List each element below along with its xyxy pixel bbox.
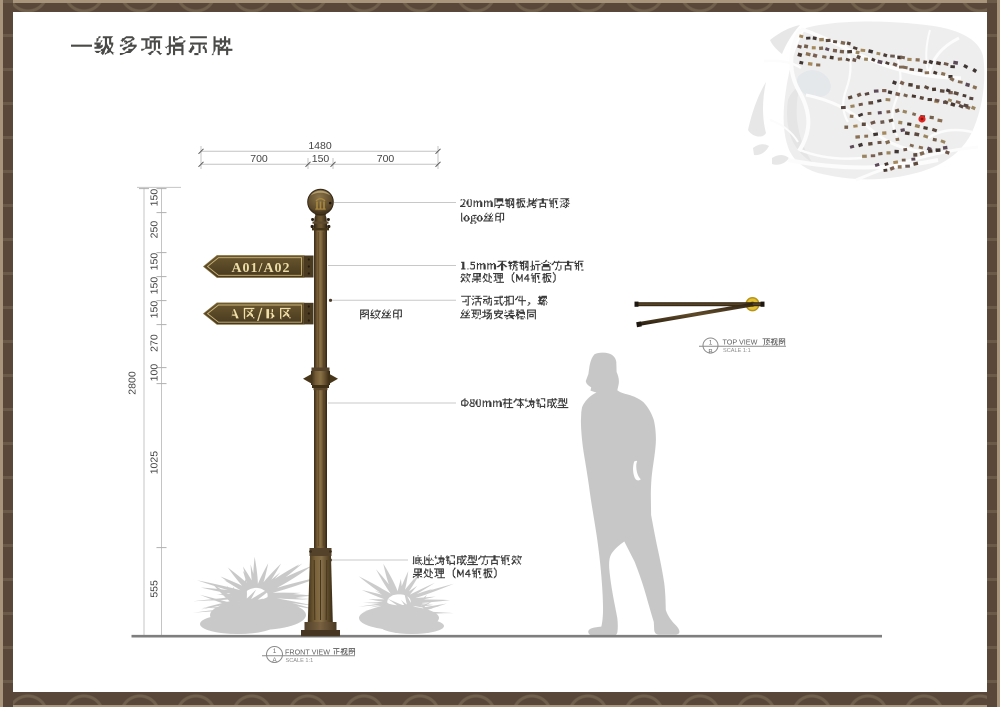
svg-text:A: A bbox=[272, 657, 277, 664]
svg-text:TOP VIEW: TOP VIEW bbox=[723, 338, 758, 347]
svg-text:150: 150 bbox=[149, 277, 161, 295]
svg-text:FRONT VIEW: FRONT VIEW bbox=[285, 647, 330, 656]
svg-text:150: 150 bbox=[149, 189, 161, 207]
svg-text:1480: 1480 bbox=[308, 140, 332, 152]
svg-text:150: 150 bbox=[149, 301, 161, 319]
svg-text:B: B bbox=[708, 348, 712, 355]
svg-text:2800: 2800 bbox=[127, 371, 139, 395]
svg-text:A01/A02: A01/A02 bbox=[231, 261, 290, 276]
svg-text:700: 700 bbox=[377, 153, 395, 165]
svg-text:250: 250 bbox=[149, 221, 161, 239]
svg-text:1025: 1025 bbox=[149, 451, 161, 475]
svg-text:555: 555 bbox=[149, 580, 161, 598]
svg-text:150: 150 bbox=[312, 153, 330, 165]
svg-text:1: 1 bbox=[709, 339, 713, 346]
svg-text:150: 150 bbox=[149, 253, 161, 271]
svg-text:100: 100 bbox=[149, 364, 161, 382]
svg-text:270: 270 bbox=[149, 334, 161, 352]
svg-text:SCALE 1:1: SCALE 1:1 bbox=[723, 348, 751, 354]
svg-text:700: 700 bbox=[250, 153, 268, 165]
svg-text:1: 1 bbox=[273, 648, 277, 655]
svg-text:SCALE 1:1: SCALE 1:1 bbox=[286, 658, 314, 664]
